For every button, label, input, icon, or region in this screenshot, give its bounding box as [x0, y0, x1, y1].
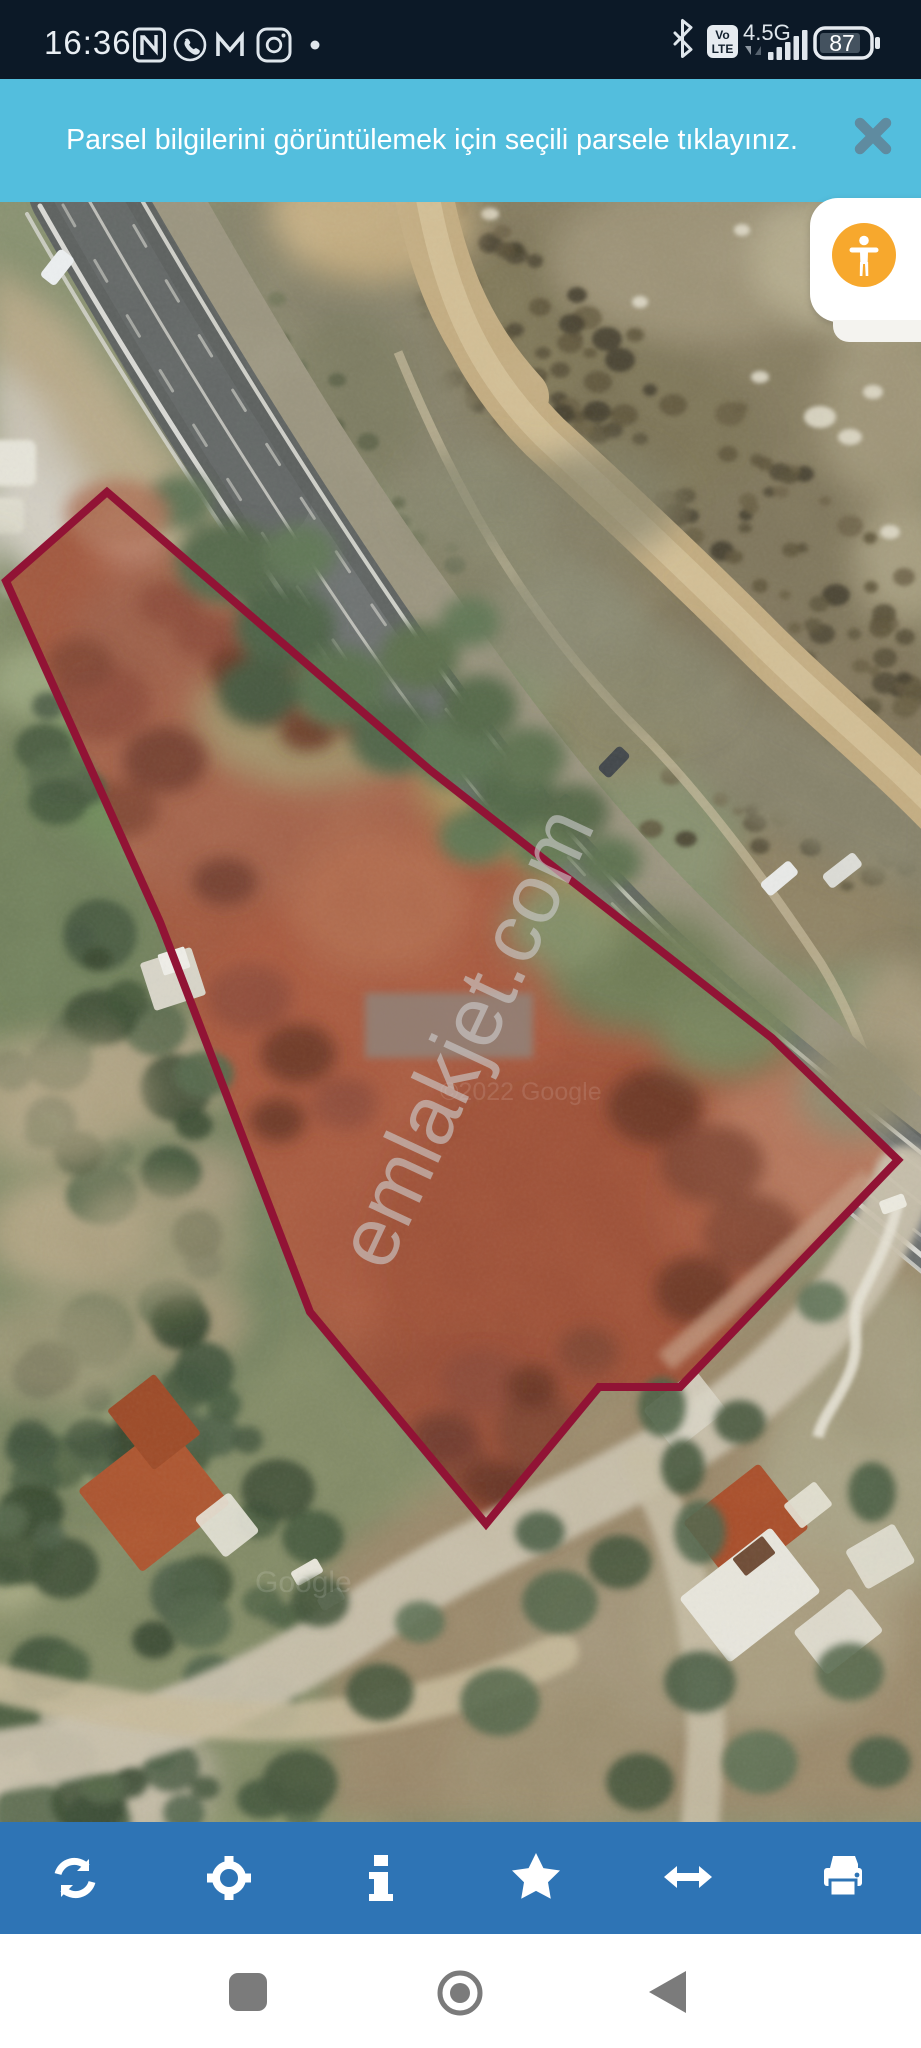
svg-text:Vo: Vo: [715, 28, 729, 42]
svg-text:Google: Google: [255, 1566, 352, 1599]
svg-text:LTE: LTE: [712, 42, 734, 56]
svg-text:4.5G: 4.5G: [743, 20, 791, 45]
svg-text:87: 87: [829, 30, 855, 56]
